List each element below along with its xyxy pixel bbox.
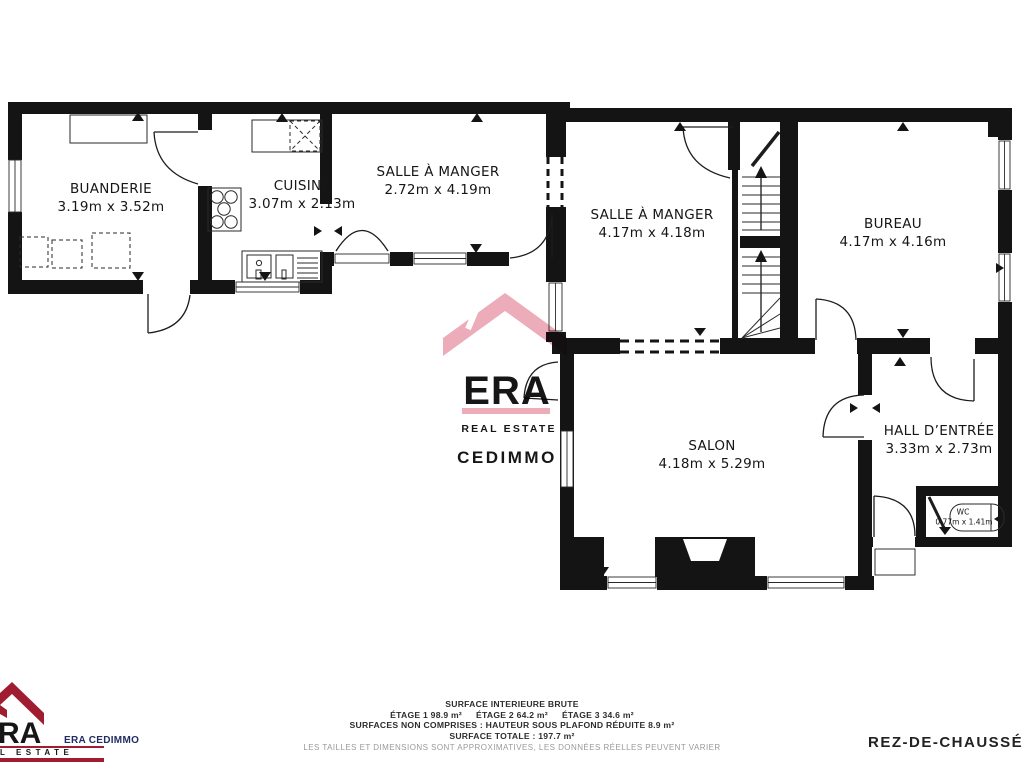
surface-non-comprises: SURFACES NON COMPRISES : HAUTEUR SOUS PL… <box>300 720 724 731</box>
room-label-wc: WC <box>957 508 970 517</box>
era-logo-estate: L ESTATE <box>0 748 73 757</box>
appliance-box <box>20 237 48 267</box>
watermark-real-estate: REAL ESTATE <box>461 423 556 435</box>
staircase <box>742 166 780 338</box>
room-dims-buanderie: 3.19m x 3.52m <box>58 199 165 215</box>
stove <box>208 188 241 231</box>
etage-2: ÉTAGE 2 64.2 m² <box>476 710 548 720</box>
surface-totale: SURFACE TOTALE : 197.7 m² <box>300 731 724 742</box>
room-label-salon: SALON <box>688 438 735 454</box>
watermark-cedimmo: CEDIMMO <box>457 448 557 467</box>
etage-1: ÉTAGE 1 98.9 m² <box>390 710 462 720</box>
dashed-openings <box>548 157 720 352</box>
fireplace <box>655 537 755 577</box>
room-dims-cuisine: 3.07m x 2.13m <box>249 196 356 212</box>
etage-3: ÉTAGE 3 34.6 m² <box>562 710 634 720</box>
surface-etages: ÉTAGE 1 98.9 m²ÉTAGE 2 64.2 m²ÉTAGE 3 34… <box>300 710 724 721</box>
era-logo-letters: RA <box>0 717 41 750</box>
room-dims-bureau: 4.17m x 4.16m <box>840 234 947 250</box>
floorplan-page: { "colors": { "wall": "#141414", "waterm… <box>0 0 1024 768</box>
room-label-hall: HALL D’ENTRÉE <box>884 422 995 439</box>
disclaimer: LES TAILLES ET DIMENSIONS SONT APPROXIMA… <box>300 743 724 754</box>
surface-summary: SURFACE INTERIEURE BRUTE ÉTAGE 1 98.9 m²… <box>300 699 724 754</box>
era-watermark: ERA REAL ESTATE CEDIMMO <box>443 293 567 467</box>
room-dims-salle-a-manger-2: 4.17m x 4.18m <box>599 225 706 241</box>
room-label-salle-a-manger-1: SALLE À MANGER <box>377 163 500 180</box>
appliance-box <box>92 233 130 268</box>
appliance-box <box>52 240 82 268</box>
room-label-buanderie: BUANDERIE <box>70 181 152 197</box>
room-label-cuisine: CUISINE <box>274 178 331 194</box>
room-dims-wc: 0.77m x 1.41m <box>935 518 992 527</box>
measure-markers <box>10 112 1004 576</box>
walls <box>8 102 1012 590</box>
era-roof <box>443 293 567 356</box>
watermark-era: ERA <box>463 369 550 413</box>
room-dims-salle-a-manger-1: 2.72m x 4.19m <box>385 182 492 198</box>
floorplan-canvas: ERA REAL ESTATE CEDIMMO BUANDERIE 3.19m … <box>0 0 1024 768</box>
surface-title: SURFACE INTERIEURE BRUTE <box>300 699 724 710</box>
room-dims-hall: 3.33m x 2.73m <box>886 441 993 457</box>
era-logo-bottom-left: RA L ESTATE <box>0 678 140 768</box>
floor-title: REZ-DE-CHAUSSÉE <box>868 734 1024 751</box>
room-dims-salon: 4.18m x 5.29m <box>659 456 766 472</box>
room-label-salle-a-manger-2: SALLE À MANGER <box>591 206 714 223</box>
room-label-bureau: BUREAU <box>864 216 922 232</box>
floorplan-drawing: ERA REAL ESTATE CEDIMMO BUANDERIE 3.19m … <box>0 0 1024 768</box>
agency-name: ERA CEDIMMO <box>64 735 139 746</box>
